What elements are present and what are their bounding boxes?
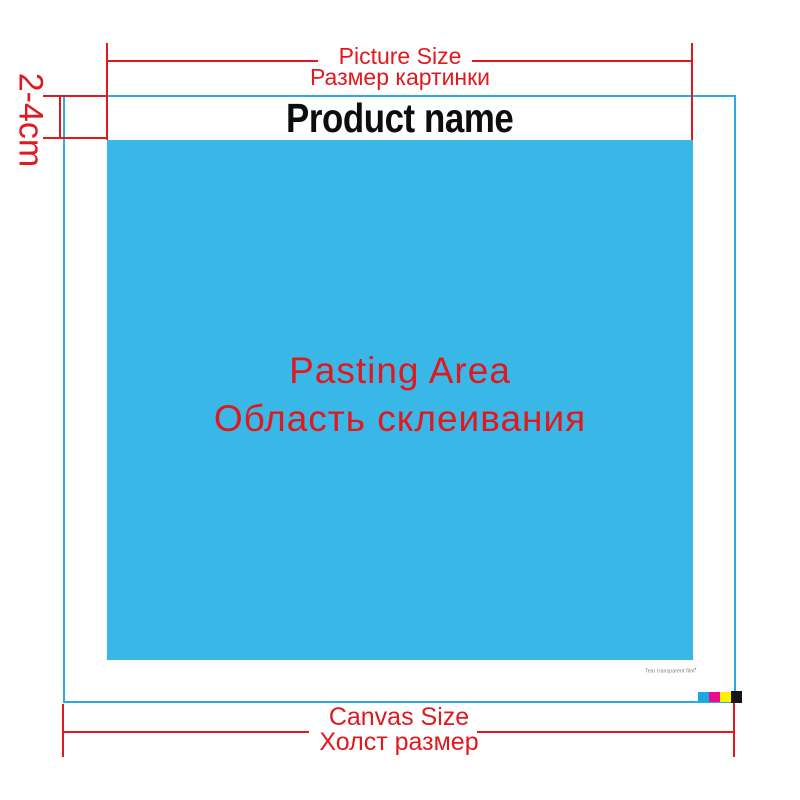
- fine-print-label: Tear transparent film: [645, 669, 695, 675]
- product-name-text: Product name: [286, 98, 513, 138]
- pasting-area: Pasting Area Область склеивания: [107, 140, 693, 660]
- yellow-swatch: [720, 692, 731, 702]
- fine-print-text: Tear transparent film▪: [645, 666, 725, 675]
- pasting-area-label-en: Pasting Area: [289, 347, 511, 395]
- margin-label: 2-4cm: [11, 73, 50, 167]
- fine-print-mark-icon: ▪: [695, 666, 697, 671]
- product-name-label: Product name: [107, 98, 693, 138]
- cyan-swatch: [698, 692, 709, 702]
- black-swatch: [731, 691, 742, 703]
- margin-tick-top: [43, 95, 107, 97]
- canvas-size-label-ru: Холст размер: [63, 729, 735, 755]
- margin-connector-line: [59, 95, 61, 139]
- picture-size-label-ru: Размер картинки: [107, 66, 693, 89]
- canvas-size-diagram: Product name Pasting Area Область склеив…: [0, 0, 800, 800]
- magenta-swatch: [709, 692, 720, 702]
- margin-tick-bottom: [43, 137, 107, 139]
- canvas-size-label-en: Canvas Size: [63, 705, 735, 730]
- pasting-area-label-ru: Область склеивания: [214, 395, 586, 443]
